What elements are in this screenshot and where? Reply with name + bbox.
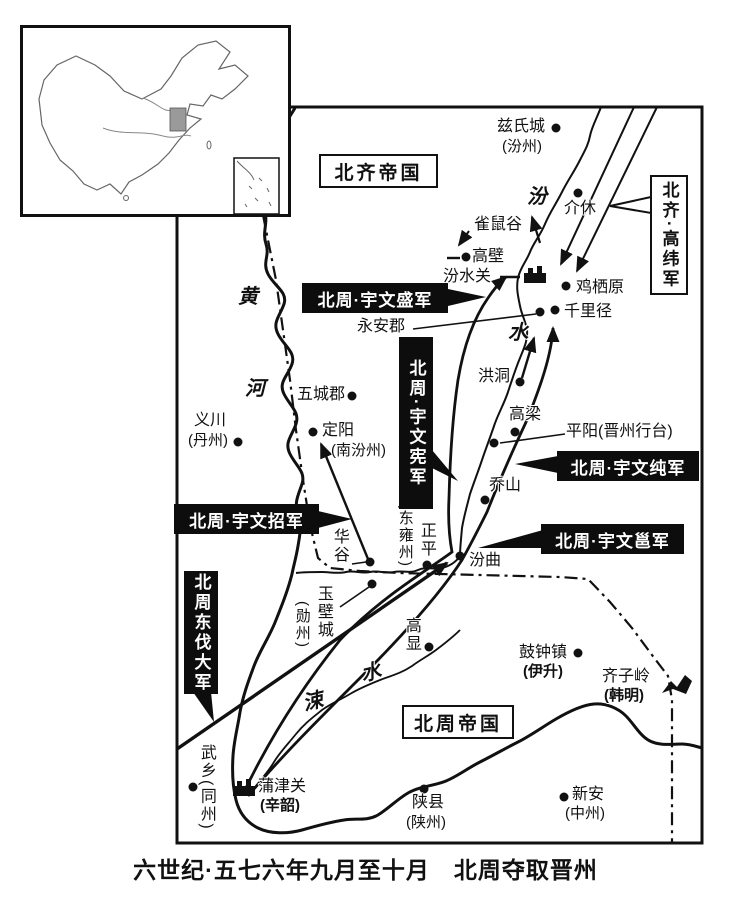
yuwenchun-army-box: 北周·宇文纯军 <box>557 451 699 481</box>
map-caption: 六世纪·五七六年九月至十月 北周夺取晋州 <box>0 851 731 885</box>
river-label-huang: 黄 <box>238 286 258 308</box>
south-china-sea-box <box>234 158 279 214</box>
place-label-dingyang-sub: (南汾州) <box>331 443 386 460</box>
place-label-qiaoshan: 乔山 <box>489 477 521 495</box>
place-label-guzhongzhen: 鼓钟镇 <box>519 644 567 662</box>
place-label-fenqu: 汾曲 <box>469 552 501 570</box>
place-label-gaoxian: 高显 <box>402 617 420 653</box>
pingyang-leader <box>500 434 565 443</box>
place-label-qianlijing: 千里径 <box>564 303 612 321</box>
place-label-yichuan-sub: (丹州) <box>188 433 228 450</box>
place-label-gaobi: 高壁 <box>472 248 504 266</box>
taiwan-outline <box>207 141 211 149</box>
place-label-cishicheng-sub: (汾州) <box>502 139 542 156</box>
dongfa-tail <box>193 692 214 722</box>
yuwenzhao-tail <box>318 511 352 528</box>
place-label-xinan-sub: (中州) <box>565 806 605 823</box>
place-label-zhengping: 正平 <box>417 522 435 558</box>
yuwensheng-tail <box>448 289 486 306</box>
gaowei-arrow-2 <box>577 107 657 271</box>
yubicheng-leader <box>340 587 369 607</box>
gaowei-army-box: 北齐·高纬军 <box>650 175 688 295</box>
gaowei-tail <box>610 197 651 213</box>
yuwenyong-army-box: 北周·宇文邕军 <box>541 524 684 554</box>
campaign-region-highlight <box>170 108 186 131</box>
yuwenchun-tail <box>515 456 558 473</box>
place-label-yichuan: 义川 <box>194 412 226 430</box>
gaowei-arrow-1 <box>561 107 634 264</box>
north-zhou-empire-box: 北周帝国 <box>402 705 514 739</box>
place-label-cishicheng: 兹氏城 <box>497 118 545 136</box>
place-label-pujinguan: 蒲津关 <box>258 778 306 796</box>
place-label-wuchengjun: 五城郡 <box>297 386 345 404</box>
yuwenxian-tail <box>432 450 458 481</box>
fortress-icon <box>524 266 546 283</box>
fortress-icon <box>233 779 255 796</box>
place-label-gaoliang: 高梁 <box>509 406 541 424</box>
place-label-pujinguan-sub: (辛韶) <box>260 798 300 815</box>
china-outline-map <box>23 28 288 214</box>
north-qi-empire-box: 北齐帝国 <box>319 154 438 188</box>
historical-map-canvas: 北齐帝国 北周帝国 北齐·高纬军 北周·宇文盛军 北周·宇文宪军 北周·宇文招军… <box>0 0 731 903</box>
china-outline <box>39 41 248 194</box>
place-label-jiexiu: 介休 <box>564 200 596 218</box>
dongfa-army-box: 北周东伐大军 <box>184 571 218 694</box>
place-label-pingyang: 平阳(晋州行台) <box>566 423 673 441</box>
yuwensheng-army-box: 北周·宇文盛军 <box>302 283 448 313</box>
place-label-dongyongzhou: (东雍州) <box>396 503 413 568</box>
river-label-fen: 汾 <box>527 186 547 208</box>
yuwenzhao-army-box: 北周·宇文招军 <box>174 504 319 534</box>
place-label-guzhongzhen-sub: (伊升) <box>523 664 563 681</box>
place-label-queshugu: 雀鼠谷 <box>474 216 522 234</box>
place-label-yonganjun: 永安郡 <box>357 318 405 336</box>
place-label-huagu: 华谷 <box>330 528 348 564</box>
place-label-wuxiang: 武乡(同州) <box>197 744 215 831</box>
china-locator-inset <box>20 25 291 217</box>
river-label-fen-shui: 水 <box>508 322 528 344</box>
place-label-dingyang: 定阳 <box>322 422 354 440</box>
yuwenxian-army-box: 北周·宇文宪军 <box>399 337 433 509</box>
place-label-yubicheng: 玉壁城 <box>314 585 332 639</box>
place-label-qiziling: 齐子岭 <box>602 668 650 686</box>
gaobi-arrow <box>459 231 469 245</box>
place-label-fenshuiguan: 汾水关 <box>443 268 491 286</box>
place-label-xunzhou: (勋州) <box>293 601 310 649</box>
place-label-xinan: 新安 <box>572 786 604 804</box>
huagu-leader <box>352 562 366 564</box>
place-label-jiqiyuan: 鸡栖原 <box>576 279 624 297</box>
yuwenyong-tail <box>478 530 543 548</box>
river-label-he: 河 <box>245 378 265 400</box>
place-label-hongtong: 洪洞 <box>478 368 510 386</box>
place-label-shanxian-sub: (陕州) <box>406 815 446 832</box>
hainan-outline <box>124 196 129 201</box>
place-label-shanxian: 陕县 <box>412 794 444 812</box>
place-label-qiziling-sub: (韩明) <box>604 688 644 705</box>
mountain-pass-icon <box>662 675 692 694</box>
